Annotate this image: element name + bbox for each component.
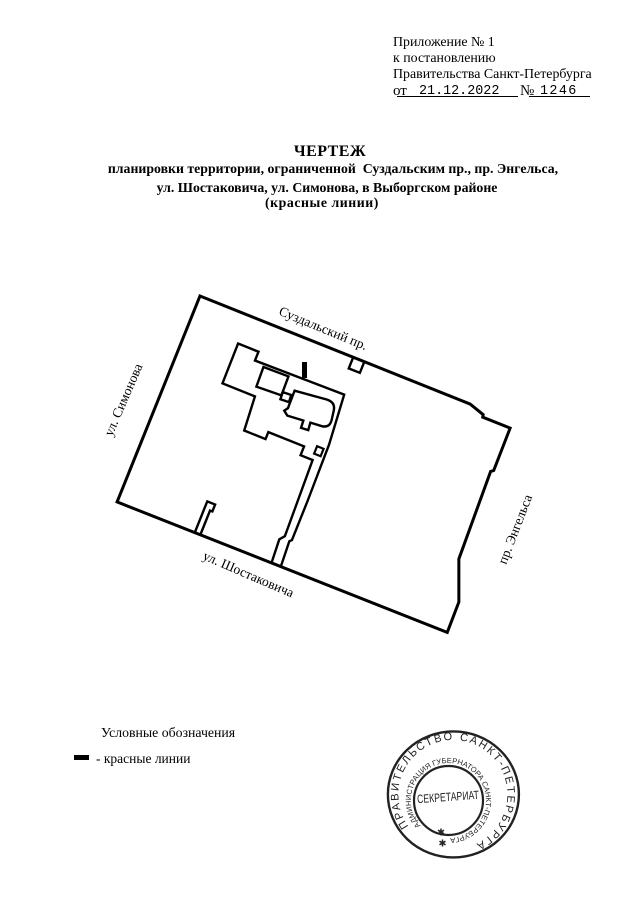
svg-text:ул. Шостаковича: ул. Шостаковича [201,548,296,600]
svg-text:ул. Симонова: ул. Симонова [101,361,145,438]
svg-text:СЕКРЕТАРИАТ: СЕКРЕТАРИАТ [417,788,480,806]
svg-text:пр. Энгельса: пр. Энгельса [495,492,535,566]
